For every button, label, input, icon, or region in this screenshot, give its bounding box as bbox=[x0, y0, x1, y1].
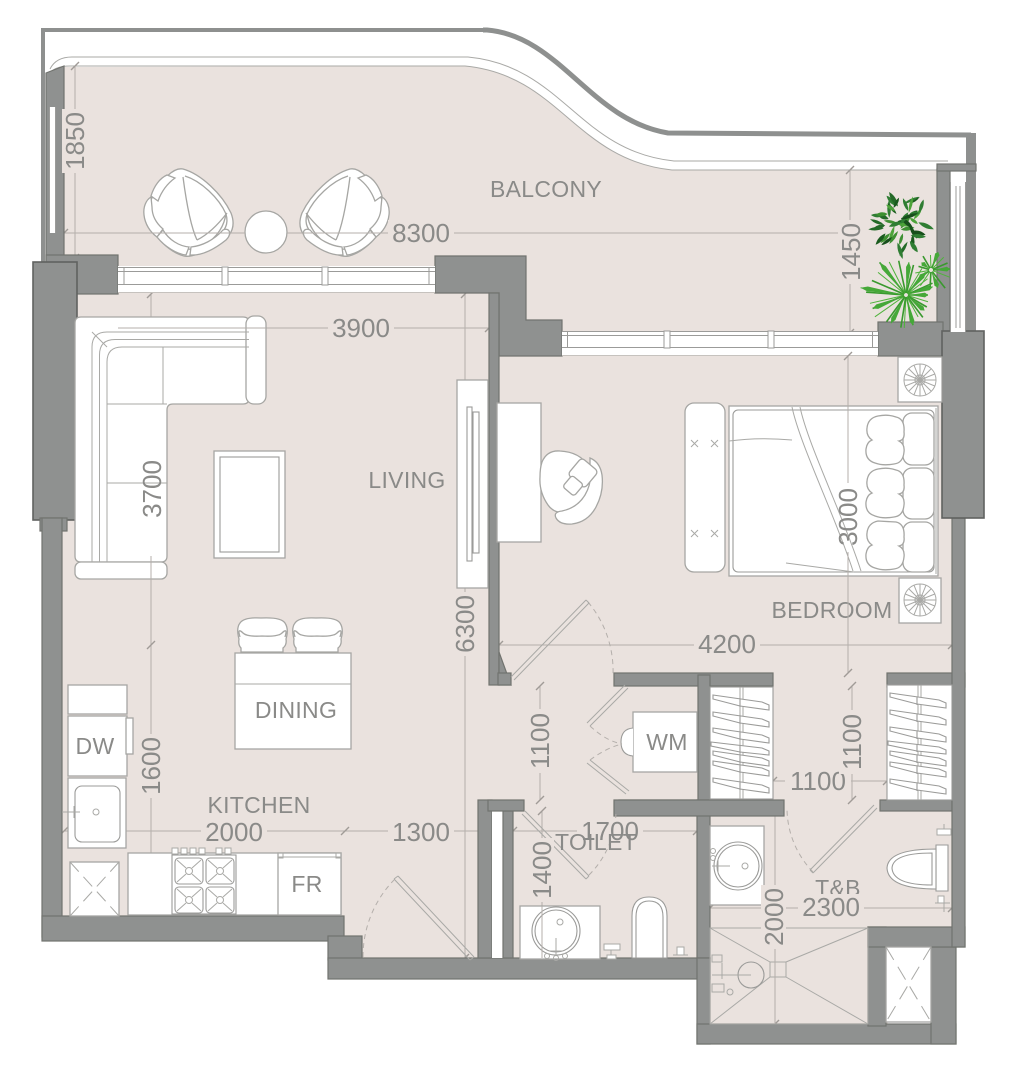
svg-text:2300: 2300 bbox=[802, 892, 860, 922]
svg-text:1300: 1300 bbox=[392, 817, 450, 847]
svg-text:BALCONY: BALCONY bbox=[490, 176, 602, 202]
svg-text:BEDROOM: BEDROOM bbox=[772, 597, 893, 623]
svg-text:LIVING: LIVING bbox=[368, 467, 445, 493]
svg-text:1400: 1400 bbox=[527, 841, 557, 899]
svg-text:8300: 8300 bbox=[392, 218, 450, 248]
svg-text:TOILET: TOILET bbox=[555, 829, 637, 855]
svg-text:6300: 6300 bbox=[450, 595, 480, 653]
svg-text:KITCHEN: KITCHEN bbox=[207, 792, 310, 818]
svg-text:FR: FR bbox=[291, 871, 322, 897]
svg-text:1450: 1450 bbox=[836, 223, 866, 281]
svg-text:3700: 3700 bbox=[137, 460, 167, 518]
svg-text:1100: 1100 bbox=[525, 713, 555, 769]
svg-text:1100: 1100 bbox=[837, 714, 867, 770]
svg-text:1600: 1600 bbox=[136, 737, 166, 795]
svg-text:2000: 2000 bbox=[759, 888, 789, 946]
svg-text:DINING: DINING bbox=[255, 697, 337, 723]
svg-text:4200: 4200 bbox=[698, 629, 756, 659]
svg-text:DW: DW bbox=[76, 733, 115, 759]
svg-text:3000: 3000 bbox=[833, 488, 863, 546]
svg-text:1850: 1850 bbox=[60, 112, 90, 170]
svg-text:3900: 3900 bbox=[332, 313, 390, 343]
svg-text:WM: WM bbox=[646, 729, 687, 755]
svg-text:2000: 2000 bbox=[205, 817, 263, 847]
